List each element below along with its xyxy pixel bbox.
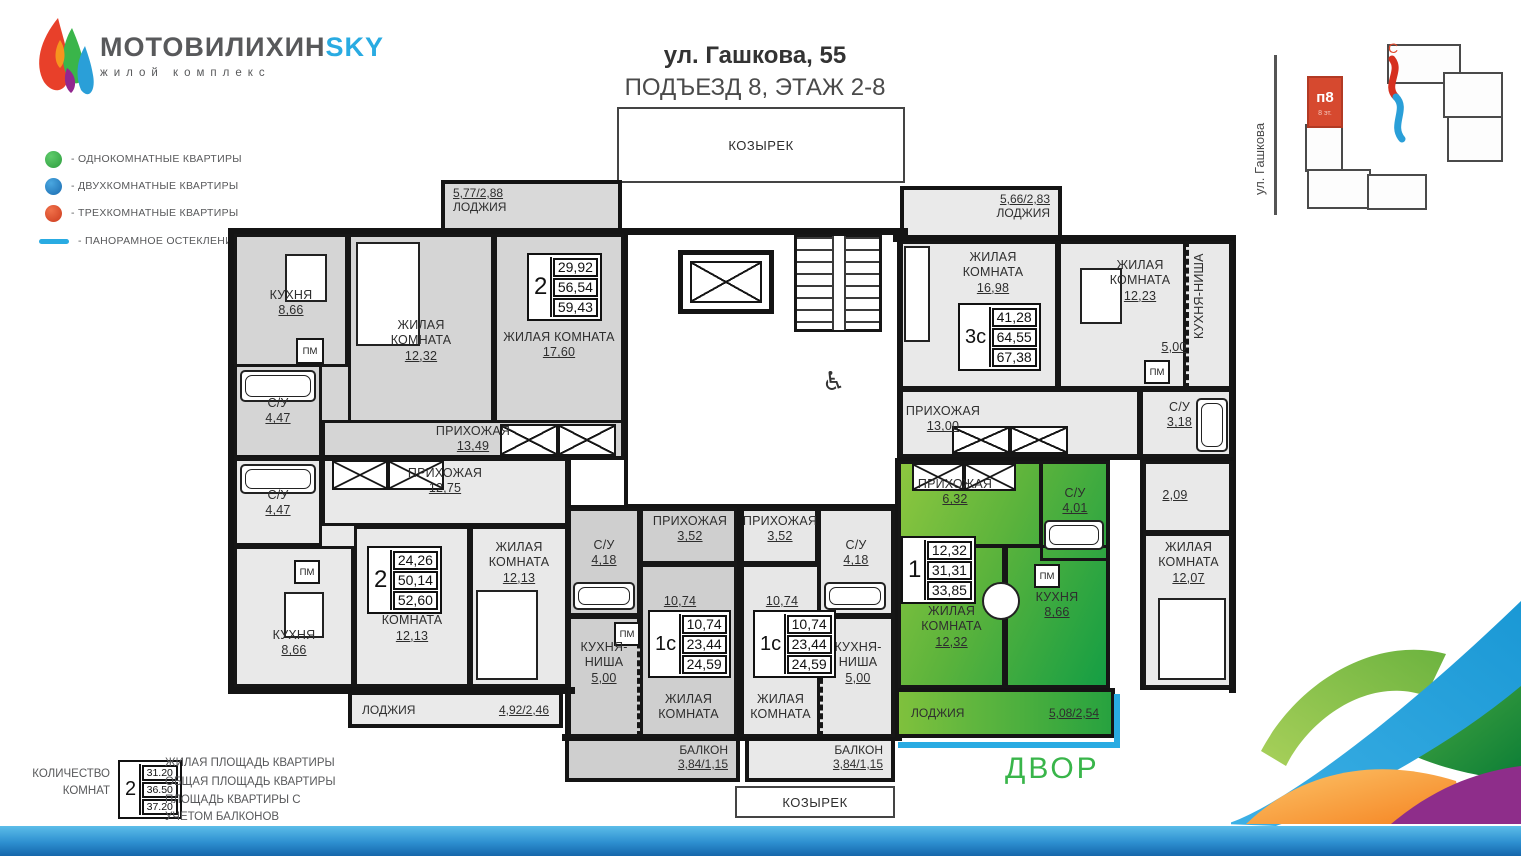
loggia-tl-area: 5,77/2,88 xyxy=(453,186,506,200)
loggia-green-name: ЛОДЖИЯ xyxy=(911,706,964,720)
bathtub-icon-sl xyxy=(573,582,635,610)
elevator-icon xyxy=(690,261,762,303)
legend-item-panoramic: - ПАНОРАМНОЕ ОСТЕКЛЕНИЕ xyxy=(45,232,240,250)
loggia-tr-area: 5,66/2,83 xyxy=(997,192,1050,206)
logo-subtitle: жилой комплекс xyxy=(100,67,384,79)
room-name: ЖИЛАЯ КОМНАТА xyxy=(938,250,1048,281)
entrance-floor-subtitle: ПОДЪЕЗД 8, ЭТАЖ 2-8 xyxy=(530,74,980,102)
legend-line-living: ЖИЛАЯ ПЛОЩАДЬ КВАРТИРЫ xyxy=(165,755,405,772)
building-p8-label: п8 xyxy=(1316,89,1333,106)
building-outline-2 xyxy=(1444,73,1502,117)
room-label-bath-f: С/У 3,18 xyxy=(1152,400,1207,431)
canopy-bottom: КОЗЫРЕК xyxy=(735,786,895,818)
washing-machine-slot-b: ПМ xyxy=(294,560,320,584)
one-room-dot-icon xyxy=(45,151,62,168)
wheelchair-icon: ♿ xyxy=(822,366,845,397)
stats-rooms: 1с xyxy=(757,614,786,674)
room-area: 4,47 xyxy=(248,411,308,426)
room-name: С/У xyxy=(826,538,886,553)
room-area: 17,60 xyxy=(499,345,619,360)
room-count-text: КОЛИЧЕСТВО КОМНАТ xyxy=(30,766,110,799)
room-area: 13,00 xyxy=(888,419,998,434)
room-area: 8,66 xyxy=(254,643,334,658)
room-name: ЖИЛАЯ КОМНАТА xyxy=(474,540,564,571)
stats-box-b: 2 24,26 50,14 52,60 xyxy=(367,546,442,614)
room-name: ЖИЛАЯ КОМНАТА xyxy=(733,692,828,723)
room-area: 12,32 xyxy=(904,635,999,650)
logo-flame-icon xyxy=(30,14,94,102)
loggia-green: ЛОДЖИЯ 5,08/2,54 xyxy=(895,688,1115,738)
stat-total: 31,31 xyxy=(927,561,972,580)
loggia-tl-label: 5,77/2,88 ЛОДЖИЯ xyxy=(453,186,506,214)
stats-box-sr: 1с 10,74 23,44 24,59 xyxy=(753,610,836,678)
building-outline-5 xyxy=(1308,170,1370,208)
logo-title-accent: SKY xyxy=(325,32,384,62)
room-label-living-g: ЖИЛАЯ КОМНАТА 12,32 xyxy=(904,604,999,650)
washing-machine-slot-g: ПМ xyxy=(1034,564,1060,588)
logo-title-main: МОТОВИЛИХИН xyxy=(100,32,325,62)
room-label-living2-a: ЖИЛАЯ КОМНАТА 17,60 xyxy=(499,330,619,361)
room-name: ЖИЛАЯ КОМНАТА xyxy=(904,604,999,635)
bed-icon-b xyxy=(476,590,538,680)
stairs-rail xyxy=(832,236,846,330)
room-label-living1-f: ЖИЛАЯ КОМНАТА 16,98 xyxy=(938,250,1048,296)
stat-total: 64,55 xyxy=(992,328,1037,347)
loggia-tl-name: ЛОДЖИЯ xyxy=(453,200,506,214)
stat-with-balcony: 33,85 xyxy=(927,581,972,600)
footer-bar xyxy=(0,826,1521,856)
balcony-name: БАЛКОН xyxy=(833,743,883,757)
room-label-niche-f-area: 5,00 xyxy=(1152,340,1196,355)
room-area: 3,52 xyxy=(739,529,821,544)
balcony-right: БАЛКОН 3,84/1,15 xyxy=(745,737,895,782)
room-label-hall-f: ПРИХОЖАЯ 13,00 xyxy=(888,404,998,435)
stats-box-g: 1 12,32 31,31 33,85 xyxy=(901,536,976,604)
stats-box-a: 2 29,92 56,54 59,43 xyxy=(527,253,602,321)
building-outline-4 xyxy=(1306,125,1342,171)
room-label-hall-a: ПРИХОЖАЯ 13,49 xyxy=(393,424,553,455)
sample-rooms: 2 xyxy=(122,764,141,815)
room-name: КУХНЯ xyxy=(254,628,334,643)
room-area: 12,32 xyxy=(366,349,476,364)
panoramic-glazing-line-right xyxy=(1114,694,1120,748)
building-outline-3 xyxy=(1448,117,1502,161)
building-p8-floors: 8 эт. xyxy=(1318,110,1332,117)
room-label-kitchen-b: КУХНЯ 8,66 xyxy=(254,628,334,659)
room-area: 6,32 xyxy=(900,492,1010,507)
room-area: 13,49 xyxy=(393,439,553,454)
address-title: ул. Гашкова, 55 xyxy=(530,42,980,70)
room-area: 4,47 xyxy=(248,503,308,518)
courtyard-label: ДВОР xyxy=(1005,752,1100,786)
loggia-bottom-left: ЛОДЖИЯ 4,92/2,46 xyxy=(348,691,563,728)
three-room-dot-icon xyxy=(45,205,62,222)
balcony-area: 3,84/1,15 xyxy=(833,757,883,771)
stat-living: 10,74 xyxy=(787,615,832,634)
room-name: ЖИЛАЯ КОМНАТА xyxy=(1090,258,1190,289)
wardrobe-icon-f2 xyxy=(1010,426,1068,454)
stat-living: 12,32 xyxy=(927,541,972,560)
street-label: ул. Гашкова xyxy=(1252,75,1267,195)
washing-machine-slot-a: ПМ xyxy=(296,338,324,364)
room-label-niche-f-name: КУХНЯ-НИША xyxy=(1192,250,1207,342)
footer-legend-lines: ЖИЛАЯ ПЛОЩАДЬ КВАРТИРЫ ОБЩАЯ ПЛОЩАДЬ КВА… xyxy=(165,755,405,826)
room-name: ПРИХОЖАЯ xyxy=(888,404,998,419)
room-area: 4,01 xyxy=(1050,501,1100,516)
room-area: 4,18 xyxy=(574,553,634,568)
loggia-bl-name: ЛОДЖИЯ xyxy=(362,703,415,717)
compass-north-label: С xyxy=(1388,40,1398,56)
stat-living: 24,26 xyxy=(393,551,438,570)
title-block: ул. Гашкова, 55 ПОДЪЕЗД 8, ЭТАЖ 2-8 xyxy=(530,42,980,102)
balcony-right-label: БАЛКОН 3,84/1,15 xyxy=(833,743,883,771)
room-label-kitchen-a: КУХНЯ 8,66 xyxy=(251,288,331,319)
room-name: С/У xyxy=(248,396,308,411)
room-name: С/У xyxy=(574,538,634,553)
room-name: ПРИХОЖАЯ xyxy=(739,514,821,529)
balcony-left: БАЛКОН 3,84/1,15 xyxy=(565,737,740,782)
room-label-hall-sr: ПРИХОЖАЯ 3,52 xyxy=(739,514,821,545)
room-label-living-right: ЖИЛАЯ КОМНАТА 12,07 xyxy=(1146,540,1231,586)
room-label-living-sl: ЖИЛАЯ КОМНАТА xyxy=(641,692,736,723)
building-outline-6 xyxy=(1368,175,1426,209)
room-area: 12,23 xyxy=(1090,289,1190,304)
legend-item-three-room: - ТРЕХКОМНАТНЫЕ КВАРТИРЫ xyxy=(45,204,239,222)
room-area: 12,75 xyxy=(385,481,505,496)
room-area: 3,52 xyxy=(646,529,734,544)
room-name: ПРИХОЖАЯ xyxy=(646,514,734,529)
legend-line-balcony: ПЛОЩАДЬ КВАРТИРЫ С УЧЕТОМ БАЛКОНОВ xyxy=(165,792,335,825)
logo-text-block: МОТОВИЛИХИНSKY жилой комплекс xyxy=(100,32,384,79)
balcony-left-label: БАЛКОН 3,84/1,15 xyxy=(678,743,728,771)
two-room-dot-icon xyxy=(45,178,62,195)
room-label-hall-g: ПРИХОЖАЯ 6,32 xyxy=(900,477,1010,508)
room-count-label: КОЛИЧЕСТВО КОМНАТ xyxy=(30,766,110,799)
room-label-bath-a: С/У 4,47 xyxy=(248,396,308,427)
stat-total: 23,44 xyxy=(787,635,832,654)
site-plan-map: п8 8 эт. С xyxy=(1286,15,1518,230)
room-name: ЖИЛАЯ КОМНАТА xyxy=(1146,540,1231,571)
room-label-hall-b: ПРИХОЖАЯ 12,75 xyxy=(385,466,505,497)
logo-title: МОТОВИЛИХИНSKY xyxy=(100,32,384,63)
loggia-tr-label: 5,66/2,83 ЛОДЖИЯ xyxy=(997,192,1050,220)
room-name: ЖИЛАЯ КОМНАТА xyxy=(499,330,619,345)
stat-with-balcony: 24,59 xyxy=(787,655,832,674)
bathtub-icon-sr xyxy=(824,582,886,610)
room-label-living2-f: ЖИЛАЯ КОМНАТА 12,23 xyxy=(1090,258,1190,304)
stat-living: 29,92 xyxy=(553,258,598,277)
room-name: ПРИХОЖАЯ xyxy=(393,424,553,439)
bathtub-icon-g xyxy=(1044,520,1104,550)
room-name: С/У xyxy=(248,488,308,503)
loggia-tr-name: ЛОДЖИЯ xyxy=(997,206,1050,220)
canopy-top: КОЗЫРЕК xyxy=(617,107,905,183)
room-label-living1-a: ЖИЛАЯ КОМНАТА 12,32 xyxy=(366,318,476,364)
legend-three-room-label: - ТРЕХКОМНАТНЫЕ КВАРТИРЫ xyxy=(71,207,239,219)
room-name: ПРИХОЖАЯ xyxy=(900,477,1010,492)
wardrobe-icon-b1 xyxy=(332,460,388,490)
panoramic-line-icon xyxy=(39,239,69,244)
floorplan-page: МОТОВИЛИХИНSKY жилой комплекс - ОДНОКОМН… xyxy=(0,0,1521,856)
compass-blue-arrow-icon xyxy=(1396,97,1402,139)
stat-living: 41,28 xyxy=(992,308,1037,327)
room-label-main-area-sl: 10,74 xyxy=(650,594,710,609)
street-line xyxy=(1274,55,1277,215)
stats-box-sl: 1с 10,74 23,44 24,59 xyxy=(648,610,731,678)
room-label-hall-sl: ПРИХОЖАЯ 3,52 xyxy=(646,514,734,545)
stat-total: 50,14 xyxy=(393,571,438,590)
room-name: КУХНЯ xyxy=(251,288,331,303)
legend-one-room-label: - ОДНОКОМНАТНЫЕ КВАРТИРЫ xyxy=(71,153,242,165)
stat-with-balcony: 24,59 xyxy=(682,655,727,674)
room-area: 8,66 xyxy=(251,303,331,318)
stat-total: 23,44 xyxy=(682,635,727,654)
stats-rooms: 2 xyxy=(531,257,552,317)
decorative-waves xyxy=(1231,566,1521,826)
room-label-living-sr: ЖИЛАЯ КОМНАТА xyxy=(733,692,828,723)
bed-icon-right xyxy=(1158,598,1226,680)
loggia-top-right: 5,66/2,83 ЛОДЖИЯ xyxy=(900,186,1062,242)
room-area: 8,66 xyxy=(1022,605,1092,620)
stat-with-balcony: 52,60 xyxy=(393,591,438,610)
room-name: ЖИЛАЯ КОМНАТА xyxy=(366,318,476,349)
balcony-area: 3,84/1,15 xyxy=(678,757,728,771)
stat-with-balcony: 59,43 xyxy=(553,298,598,317)
room-area: 16,98 xyxy=(938,281,1048,296)
stats-rooms: 3с xyxy=(962,307,991,367)
stats-rooms: 1 xyxy=(905,540,926,600)
room-label-kitchen-g: КУХНЯ 8,66 xyxy=(1022,590,1092,621)
room-name: С/У xyxy=(1152,400,1207,415)
compass-red-arrow-icon xyxy=(1392,59,1396,97)
room-label-bath-b: С/У 4,47 xyxy=(248,488,308,519)
washing-machine-slot-f: ПМ xyxy=(1144,360,1170,384)
legend-two-room-label: - ДВУХКОМНАТНЫЕ КВАРТИРЫ xyxy=(71,180,239,192)
room-area: 5,00 xyxy=(572,671,636,686)
room-label-wc-right: 2,09 xyxy=(1150,488,1200,503)
stat-with-balcony: 67,38 xyxy=(992,348,1037,367)
stats-box-f: 3с 41,28 64,55 67,38 xyxy=(958,303,1041,371)
room-label-living2-b: ЖИЛАЯ КОМНАТА 12,13 xyxy=(474,540,564,586)
room-label-niche-sl: КУХНЯ-НИША 5,00 xyxy=(572,640,636,686)
room-name: КУХНЯ xyxy=(1022,590,1092,605)
room-label-bath-sl: С/У 4,18 xyxy=(574,538,634,569)
room-label-bath-sr: С/У 4,18 xyxy=(826,538,886,569)
balcony-name: БАЛКОН xyxy=(678,743,728,757)
stats-rooms: 2 xyxy=(371,550,392,610)
stat-living: 10,74 xyxy=(682,615,727,634)
room-name: ПРИХОЖАЯ xyxy=(385,466,505,481)
room-label-bath-g: С/У 4,01 xyxy=(1050,486,1100,517)
legend-item-two-room: - ДВУХКОМНАТНЫЕ КВАРТИРЫ xyxy=(45,177,239,195)
room-area: 12,13 xyxy=(474,571,564,586)
room-area: 12,13 xyxy=(367,629,457,644)
room-label-main-area-sr: 10,74 xyxy=(752,594,812,609)
loggia-bl-area: 4,92/2,46 xyxy=(499,703,549,717)
legend-panoramic-label: - ПАНОРАМНОЕ ОСТЕКЛЕНИЕ xyxy=(78,235,240,247)
legend-line-total: ОБЩАЯ ПЛОЩАДЬ КВАРТИРЫ xyxy=(165,774,405,791)
stat-total: 56,54 xyxy=(553,278,598,297)
wardrobe-icon-a2 xyxy=(558,424,616,456)
room-name: С/У xyxy=(1050,486,1100,501)
room-name: ЖИЛАЯ КОМНАТА xyxy=(641,692,736,723)
legend-item-one-room: - ОДНОКОМНАТНЫЕ КВАРТИРЫ xyxy=(45,150,242,168)
panoramic-glazing-line-bottom xyxy=(898,742,1120,748)
room-area: 4,18 xyxy=(826,553,886,568)
loggia-green-area: 5,08/2,54 xyxy=(1049,706,1099,720)
room-area: 3,18 xyxy=(1152,415,1207,430)
sofa-icon-f xyxy=(904,246,930,342)
room-area: 12,07 xyxy=(1146,571,1231,586)
site-plan: ул. Гашкова п8 8 эт. С xyxy=(1250,15,1518,230)
stats-rooms: 1с xyxy=(652,614,681,674)
room-name: КУХНЯ-НИША xyxy=(572,640,636,671)
